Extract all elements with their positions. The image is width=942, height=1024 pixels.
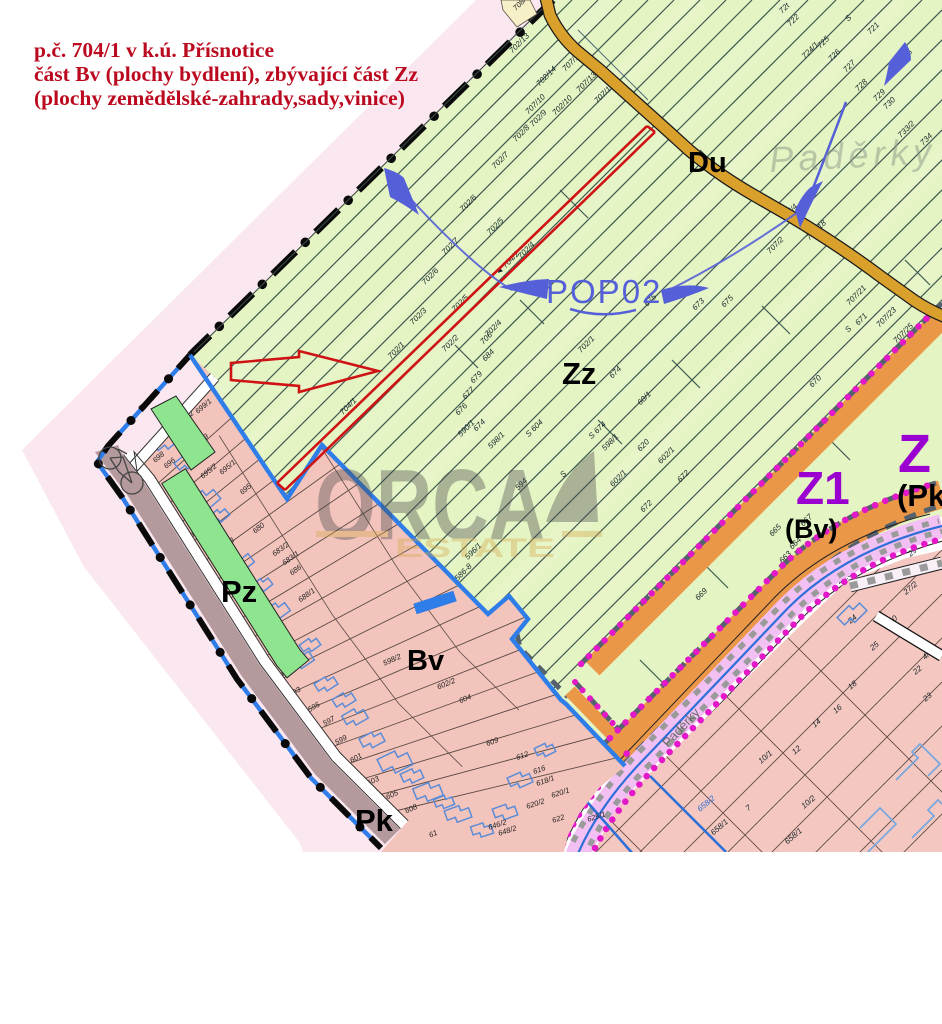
svg-text:Z: Z (898, 424, 931, 484)
svg-text:(plochy zemědělské-zahrady,sad: (plochy zemědělské-zahrady,sady,vinice) (34, 86, 405, 110)
svg-text:Z1: Z1 (796, 462, 850, 514)
svg-text:Pz: Pz (221, 574, 257, 609)
svg-text:ESTATE: ESTATE (395, 533, 555, 563)
svg-text:POP02: POP02 (546, 273, 662, 310)
svg-text:Pk: Pk (355, 803, 394, 838)
svg-text:Du: Du (688, 147, 727, 179)
svg-text:p.č. 704/1 v k.ú. Přísnotice: p.č. 704/1 v k.ú. Přísnotice (34, 38, 274, 62)
svg-text:Paděrky: Paděrky (768, 130, 937, 180)
svg-text:(Bv): (Bv) (785, 514, 838, 544)
svg-text:Zz: Zz (562, 356, 596, 391)
svg-text:část Bv (plochy bydlení), zbýv: část Bv (plochy bydlení), zbývající část… (34, 62, 418, 86)
svg-text:Bv: Bv (407, 645, 444, 677)
